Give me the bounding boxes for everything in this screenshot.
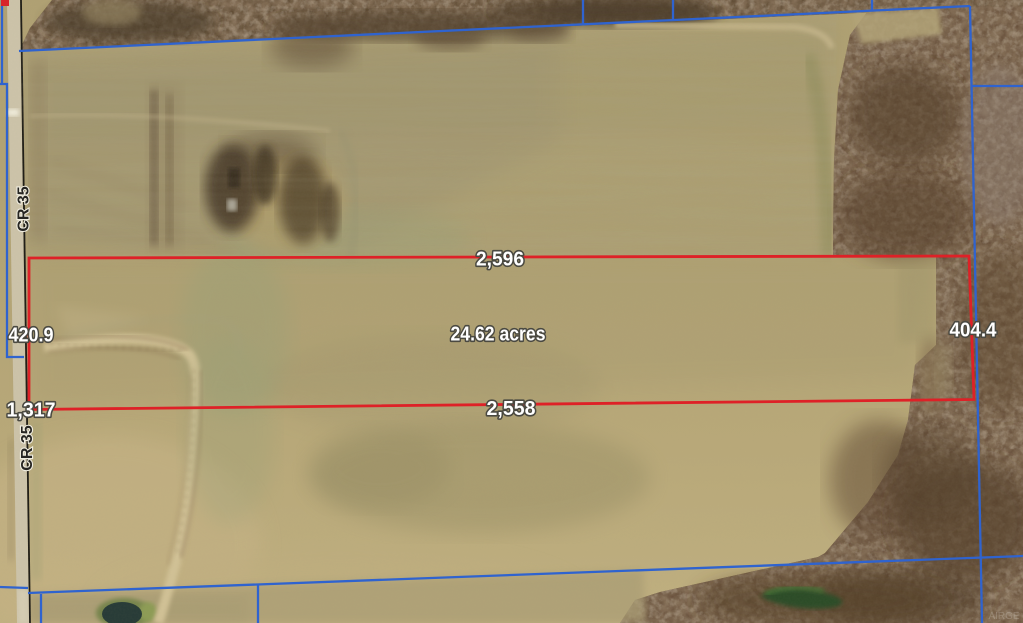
svg-text:24.62 acres: 24.62 acres: [451, 323, 546, 346]
svg-text:420.9: 420.9: [9, 324, 54, 347]
svg-text:2,558: 2,558: [487, 397, 536, 420]
svg-text:CR 35: CR 35: [16, 186, 33, 231]
svg-text:1,317: 1,317: [7, 399, 56, 422]
svg-text:2,596: 2,596: [476, 248, 524, 271]
svg-text:AIRGE: AIRGE: [988, 611, 1019, 622]
svg-text:404.4: 404.4: [950, 319, 998, 342]
svg-text:CR 35: CR 35: [19, 425, 36, 470]
